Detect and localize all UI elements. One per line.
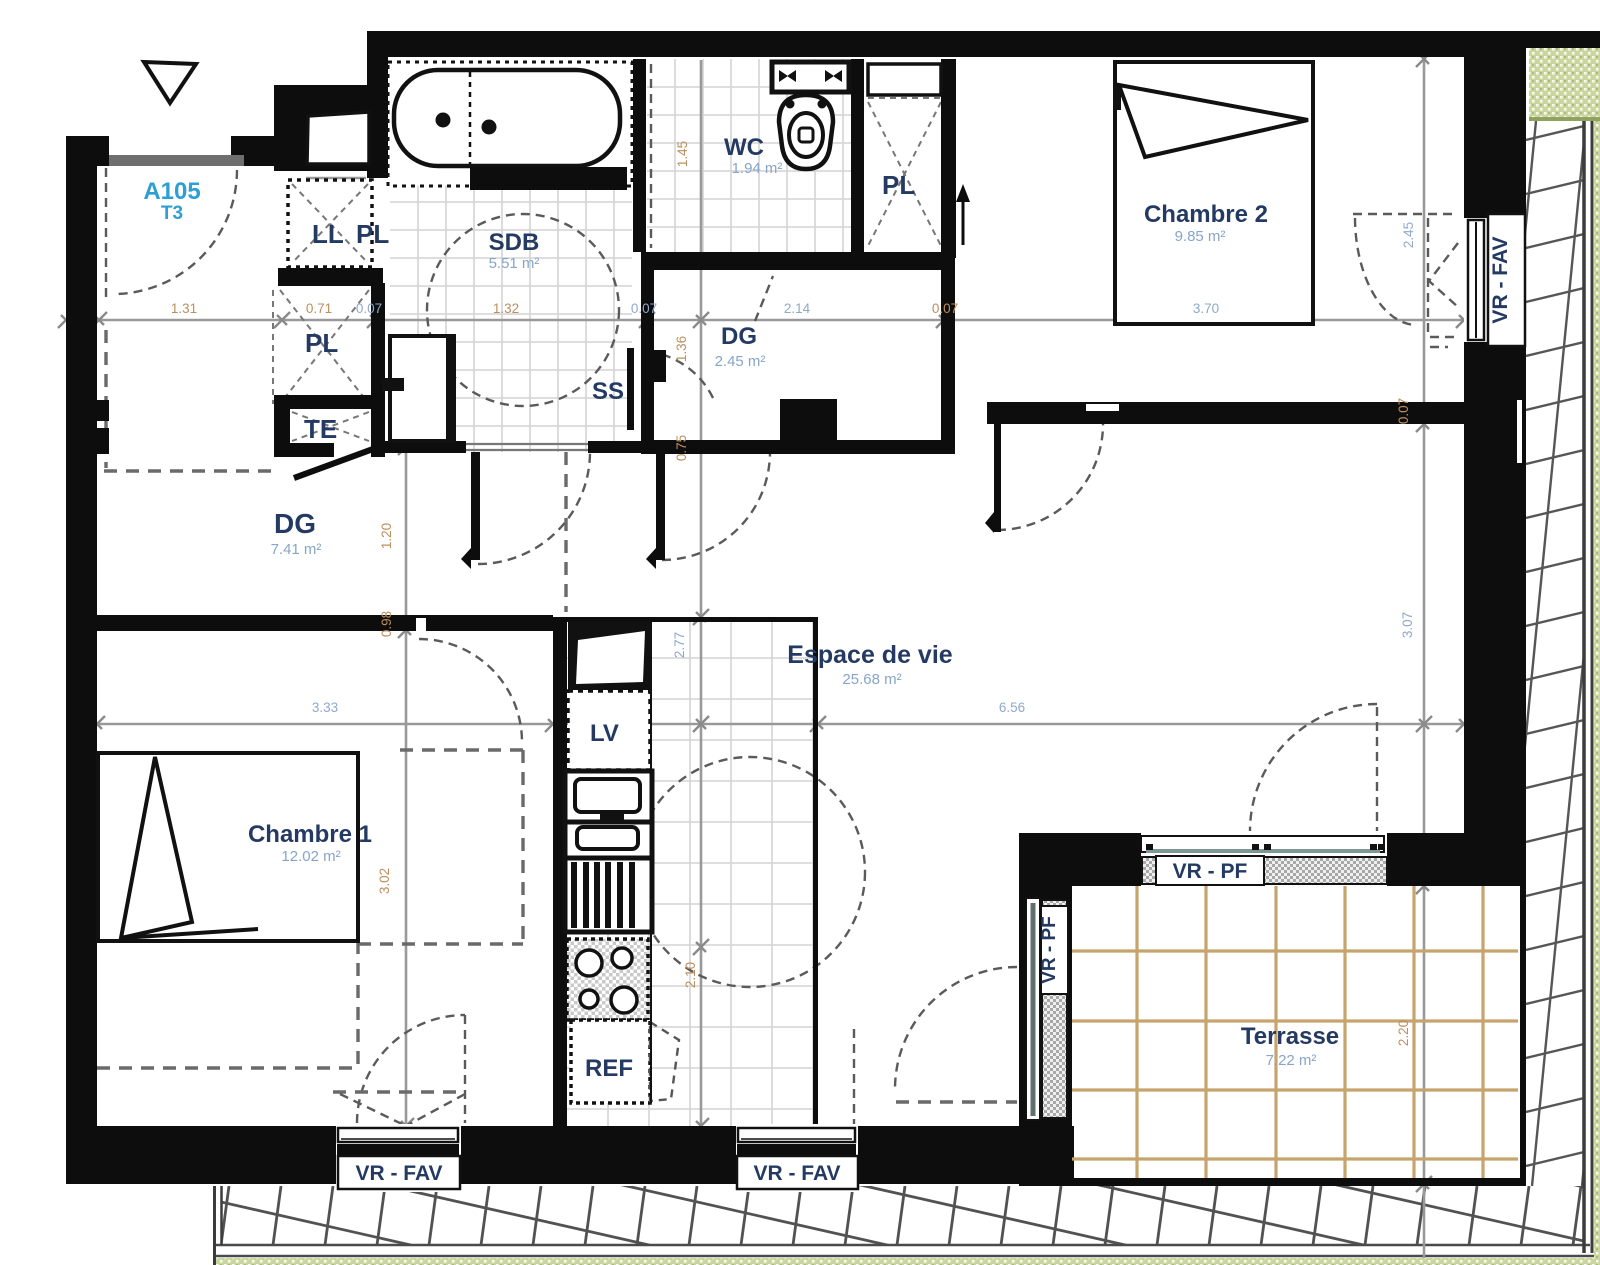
svg-text:SDB: SDB [489, 229, 540, 256]
svg-text:PL: PL [882, 170, 915, 200]
svg-text:6.56: 6.56 [999, 700, 1025, 715]
svg-text:Chambre 2: Chambre 2 [1144, 201, 1268, 228]
svg-text:Terrasse: Terrasse [1241, 1023, 1339, 1050]
svg-text:1.45: 1.45 [675, 141, 690, 167]
svg-text:2.10: 2.10 [683, 962, 698, 988]
svg-text:LV: LV [590, 720, 619, 747]
svg-text:DG: DG [274, 508, 316, 539]
svg-text:1.94 m²: 1.94 m² [732, 160, 783, 177]
svg-text:Espace de vie: Espace de vie [787, 641, 952, 669]
svg-text:VR - FAV: VR - FAV [753, 1162, 840, 1185]
svg-text:3.70: 3.70 [1193, 301, 1219, 316]
svg-text:5.51 m²: 5.51 m² [489, 255, 540, 272]
svg-text:REF: REF [585, 1055, 633, 1082]
svg-text:0.07: 0.07 [1396, 398, 1411, 424]
svg-text:VR - FAV: VR - FAV [1489, 236, 1512, 323]
svg-text:1.32: 1.32 [493, 301, 519, 316]
svg-text:VR - FAV: VR - FAV [355, 1162, 442, 1185]
svg-text:PL: PL [305, 328, 338, 358]
svg-text:2.45 m²: 2.45 m² [715, 353, 766, 370]
svg-text:VR - PF: VR - PF [1173, 860, 1248, 883]
svg-text:2.77: 2.77 [672, 632, 687, 658]
svg-text:0.98: 0.98 [379, 611, 394, 637]
svg-text:2.14: 2.14 [784, 301, 811, 316]
svg-text:12.02 m²: 12.02 m² [281, 848, 340, 865]
svg-text:2.20: 2.20 [1396, 1020, 1411, 1046]
svg-text:3.07: 3.07 [1400, 612, 1415, 638]
svg-text:1.31: 1.31 [171, 301, 197, 316]
svg-text:1.36: 1.36 [674, 336, 689, 362]
svg-text:0.07: 0.07 [932, 301, 958, 316]
svg-text:3.33: 3.33 [312, 700, 338, 715]
svg-text:2.45: 2.45 [1401, 222, 1416, 248]
svg-text:0.07: 0.07 [356, 301, 382, 316]
svg-text:VR - PF: VR - PF [1039, 916, 1060, 984]
svg-text:TE: TE [304, 414, 337, 444]
svg-text:A105: A105 [143, 178, 200, 205]
svg-text:0.71: 0.71 [306, 301, 332, 316]
svg-text:9.85 m²: 9.85 m² [1175, 228, 1226, 245]
svg-text:0.07: 0.07 [631, 301, 657, 316]
svg-text:1.20: 1.20 [379, 523, 394, 549]
svg-text:DG: DG [721, 323, 757, 350]
svg-text:7.41 m²: 7.41 m² [271, 541, 322, 558]
svg-text:Chambre 1: Chambre 1 [248, 821, 372, 848]
svg-text:LL: LL [312, 219, 344, 249]
svg-text:T3: T3 [161, 203, 183, 224]
svg-text:25.68 m²: 25.68 m² [842, 671, 901, 688]
svg-text:7.22 m²: 7.22 m² [1266, 1052, 1317, 1069]
svg-text:0.75: 0.75 [674, 435, 689, 461]
svg-text:SS: SS [592, 378, 624, 405]
svg-text:PL: PL [356, 219, 389, 249]
svg-text:WC: WC [724, 134, 764, 161]
svg-text:3.02: 3.02 [377, 868, 392, 894]
